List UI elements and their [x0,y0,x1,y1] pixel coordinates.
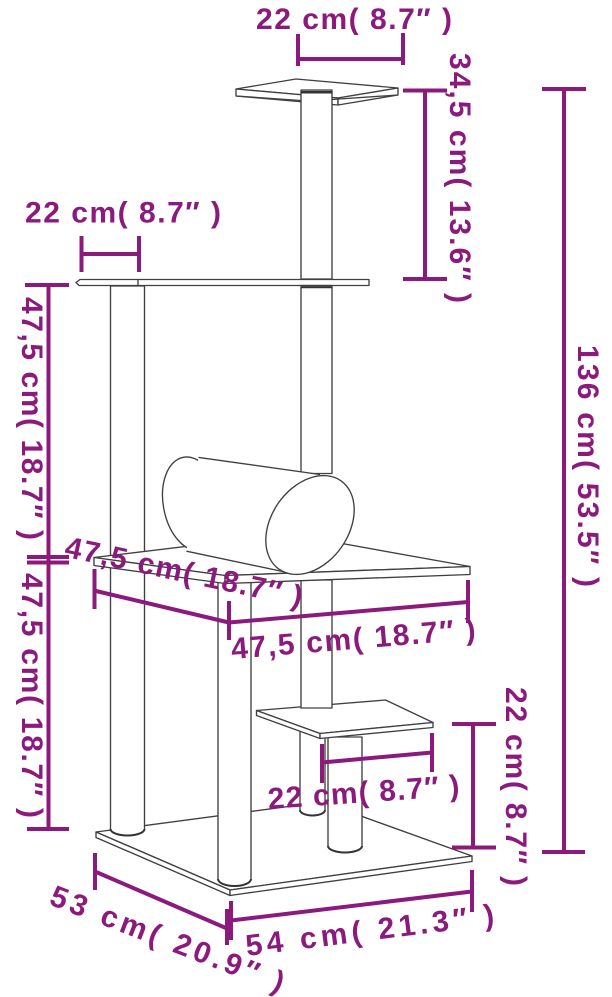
svg-text:22 cm( 8.7″ ): 22 cm( 8.7″ ) [256,3,452,36]
svg-text:22 cm( 8.7″ ): 22 cm( 8.7″ ) [25,197,221,230]
svg-text:34,5 cm( 13.6″ ): 34,5 cm( 13.6″ ) [443,53,476,303]
svg-text:47,5 cm( 18.7″ ): 47,5 cm( 18.7″ ) [15,297,48,540]
svg-text:47,5 cm( 18.7″ ): 47,5 cm( 18.7″ ) [15,573,48,818]
svg-text:22 cm( 8.7″ ): 22 cm( 8.7″ ) [499,687,532,886]
